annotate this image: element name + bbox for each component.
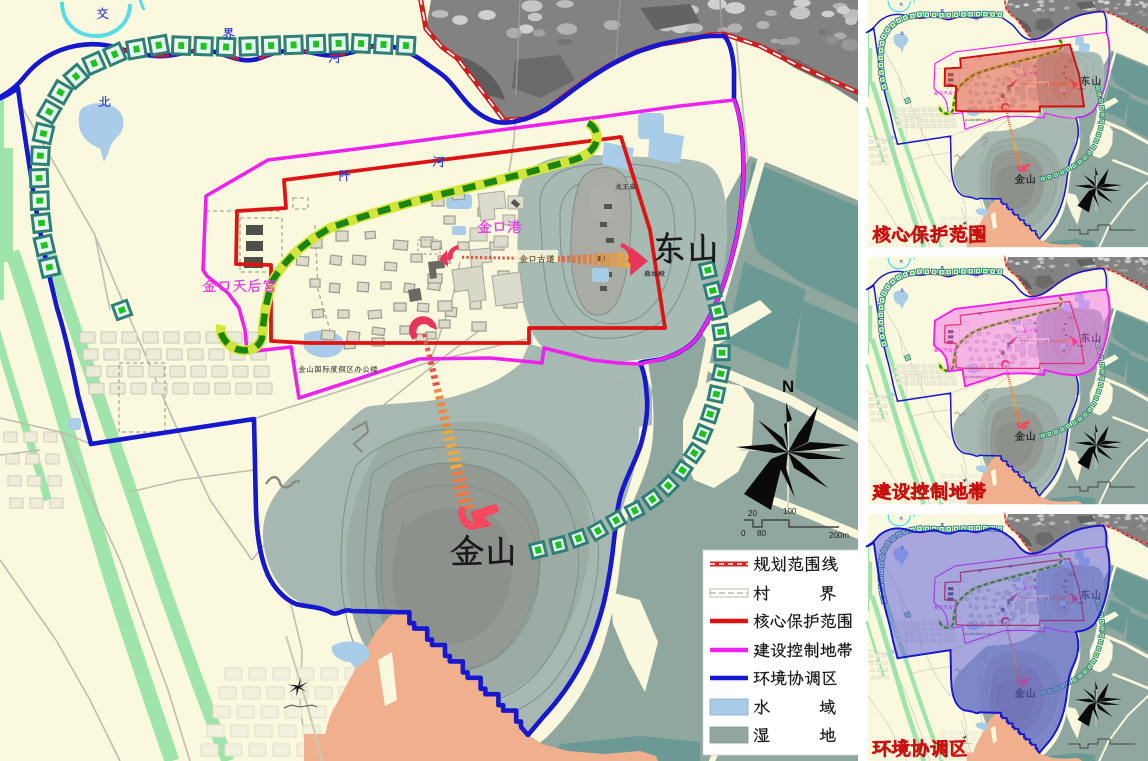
svg-text:20: 20 — [748, 509, 757, 518]
svg-text:N: N — [782, 377, 794, 396]
svg-text:100: 100 — [783, 507, 797, 516]
svg-text:80: 80 — [757, 529, 766, 538]
svg-text:200m: 200m — [829, 531, 849, 540]
svg-text:0: 0 — [741, 529, 746, 538]
